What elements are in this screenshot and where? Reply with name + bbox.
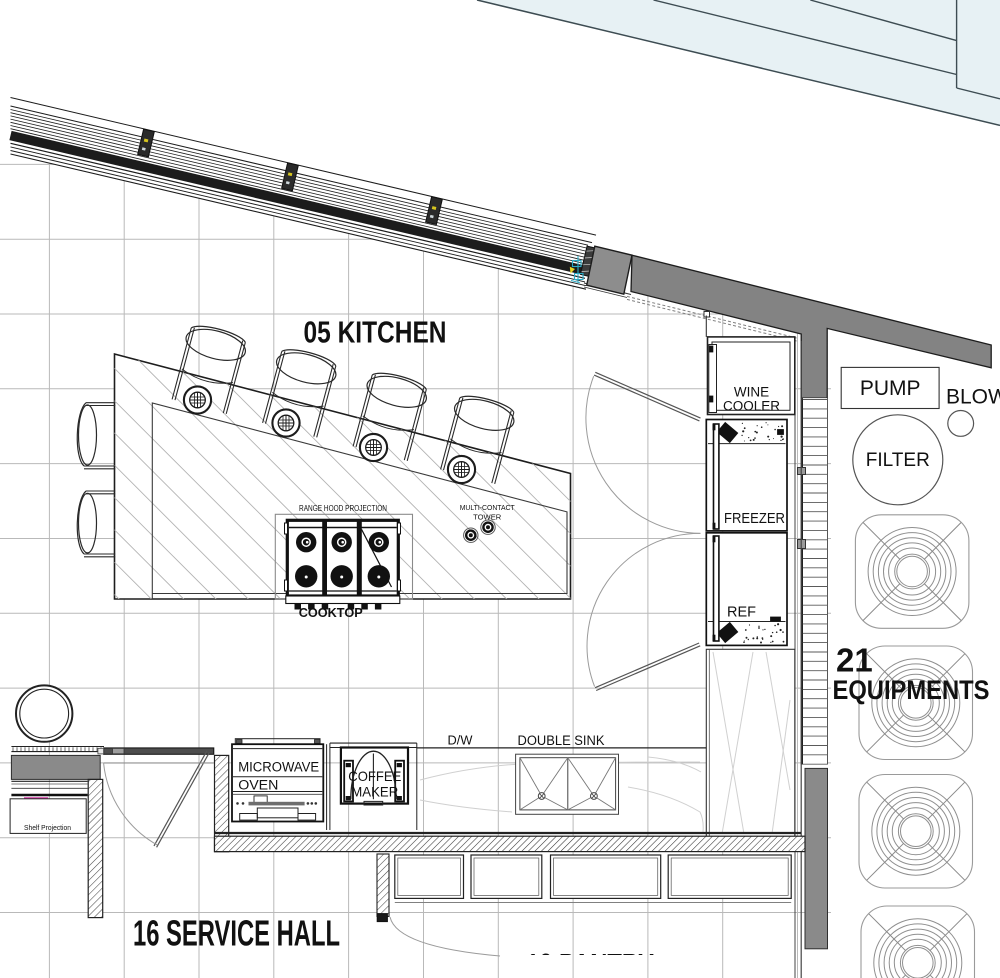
svg-text:DOUBLE SINK: DOUBLE SINK [518, 733, 605, 749]
svg-text:21: 21 [836, 642, 873, 679]
svg-text:05 KITCHEN: 05 KITCHEN [304, 315, 447, 350]
svg-text:COOKTOP: COOKTOP [299, 605, 363, 620]
svg-text:REF: REF [727, 605, 756, 621]
svg-text:RANGE HOOD PROJECTION: RANGE HOOD PROJECTION [299, 504, 387, 513]
svg-text:FILTER: FILTER [866, 450, 930, 471]
svg-text:BLOWER: BLOWER [946, 386, 1000, 409]
svg-text:MAKER: MAKER [351, 785, 398, 800]
svg-text:Shelf Projection: Shelf Projection [24, 825, 71, 832]
svg-text:EQUIPMENTS: EQUIPMENTS [833, 675, 990, 705]
svg-text:OVEN: OVEN [238, 778, 278, 794]
svg-text:PUMP: PUMP [860, 377, 921, 400]
svg-text:D/W: D/W [448, 733, 474, 748]
svg-text:MULTI-CONTACT: MULTI-CONTACT [460, 503, 515, 512]
svg-text:16 SERVICE HALL: 16 SERVICE HALL [133, 913, 340, 954]
svg-text:WINE: WINE [734, 385, 769, 400]
svg-text:COOLER: COOLER [723, 399, 780, 414]
svg-text:COFFEE: COFFEE [348, 769, 401, 784]
svg-text:MICROWAVE: MICROWAVE [238, 760, 319, 776]
svg-text:FREEZER: FREEZER [724, 511, 785, 527]
